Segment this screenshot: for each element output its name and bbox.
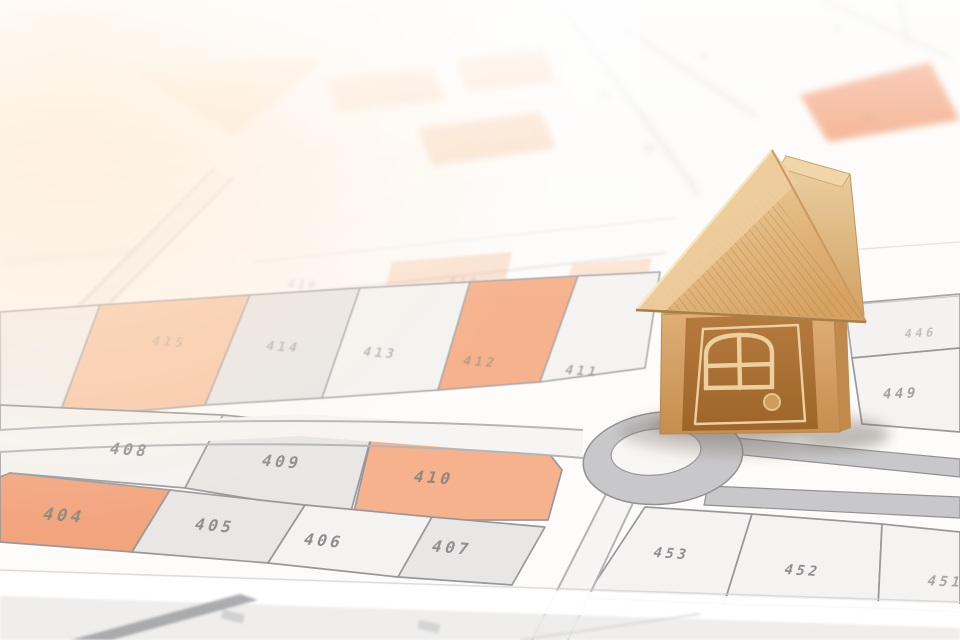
top-overexposure-left: [0, 0, 640, 300]
photo-cadastral-map-with-house-model: 419 418 417 415 414 413 412 411: [0, 0, 960, 640]
